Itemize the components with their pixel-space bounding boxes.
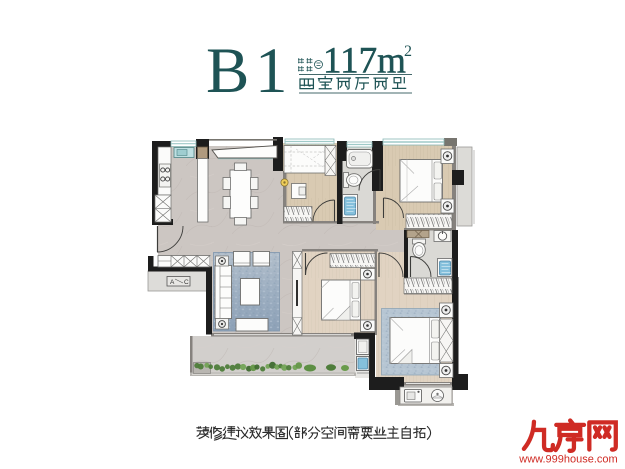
svg-text:117m: 117m — [323, 41, 406, 82]
svg-text:www.999house.com: www.999house.com — [518, 454, 617, 466]
svg-text:2: 2 — [404, 43, 412, 60]
svg-text:A: A — [170, 279, 175, 286]
svg-text:B: B — [206, 35, 249, 107]
svg-text:C: C — [184, 279, 189, 286]
svg-text:1: 1 — [255, 35, 288, 107]
